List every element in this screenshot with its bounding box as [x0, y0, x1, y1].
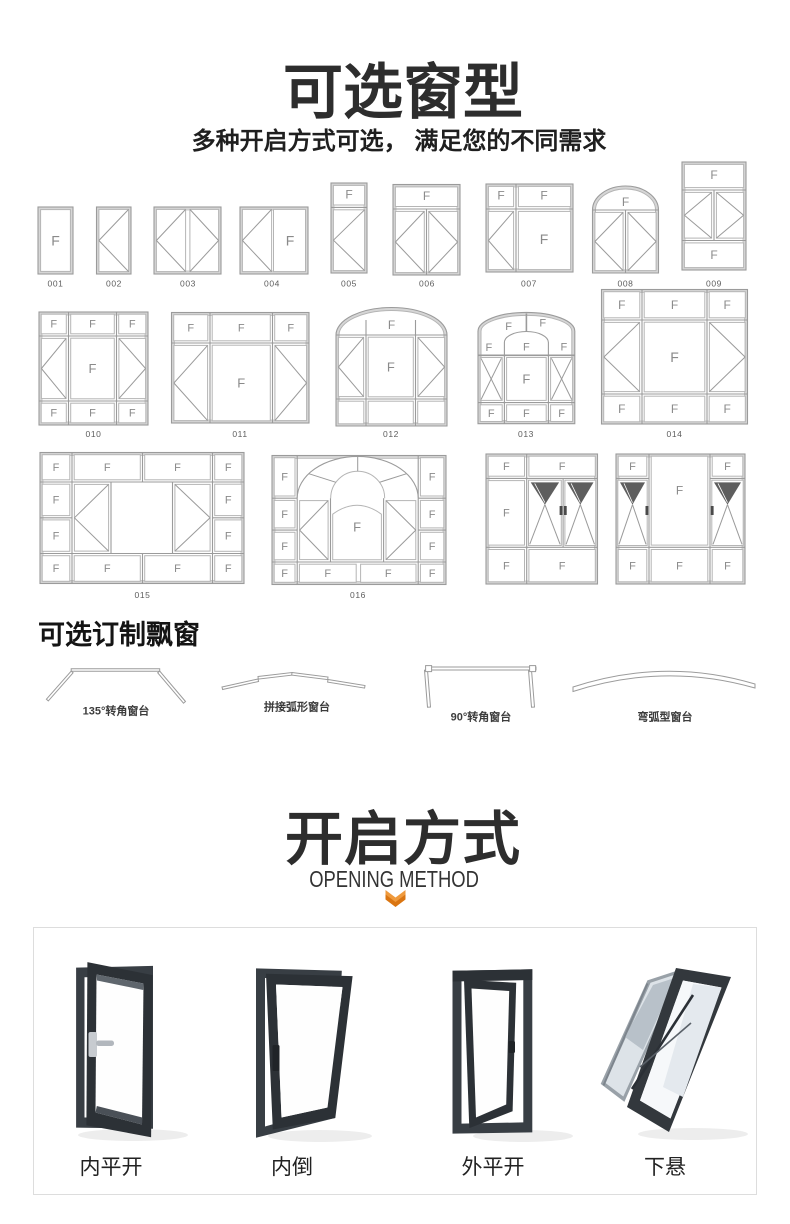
svg-text:F: F	[503, 560, 510, 572]
svg-text:009: 009	[706, 279, 722, 289]
svg-text:F: F	[286, 232, 295, 248]
svg-text:F: F	[281, 541, 288, 553]
svg-text:F: F	[676, 484, 683, 498]
svg-text:F: F	[104, 462, 111, 474]
svg-text:007: 007	[521, 279, 537, 289]
svg-text:F: F	[53, 530, 60, 542]
svg-text:F: F	[353, 519, 361, 534]
svg-text:135°转角窗台: 135°转角窗台	[83, 704, 150, 718]
svg-text:F: F	[561, 341, 568, 353]
svg-text:弯弧型窗台: 弯弧型窗台	[638, 710, 693, 724]
svg-text:013: 013	[518, 429, 534, 439]
svg-text:F: F	[523, 341, 530, 353]
svg-text:90°转角窗台: 90°转角窗台	[451, 710, 512, 724]
svg-text:F: F	[558, 408, 565, 420]
svg-text:F: F	[724, 298, 731, 312]
svg-text:F: F	[429, 541, 436, 553]
svg-text:F: F	[724, 461, 731, 473]
svg-text:F: F	[385, 568, 392, 580]
svg-text:F: F	[429, 568, 436, 580]
svg-text:F: F	[540, 189, 547, 203]
svg-text:F: F	[710, 168, 717, 182]
svg-text:F: F	[629, 461, 636, 473]
svg-text:F: F	[505, 321, 512, 333]
svg-text:002: 002	[106, 279, 122, 289]
svg-text:F: F	[281, 568, 288, 580]
svg-text:F: F	[89, 319, 96, 331]
svg-text:F: F	[174, 563, 181, 575]
svg-text:011: 011	[232, 429, 247, 439]
svg-text:F: F	[486, 342, 493, 354]
svg-text:F: F	[237, 375, 245, 390]
svg-text:F: F	[629, 560, 636, 572]
svg-text:F: F	[129, 319, 136, 331]
svg-text:005: 005	[341, 279, 357, 289]
svg-text:F: F	[89, 361, 97, 376]
svg-text:F: F	[622, 195, 629, 209]
svg-text:F: F	[540, 231, 549, 247]
svg-text:F: F	[225, 495, 232, 507]
svg-text:F: F	[387, 359, 395, 374]
svg-text:F: F	[429, 472, 436, 484]
svg-text:F: F	[281, 472, 288, 484]
svg-text:F: F	[53, 495, 60, 507]
svg-text:F: F	[710, 248, 717, 262]
svg-text:F: F	[388, 318, 395, 332]
svg-text:F: F	[497, 189, 504, 203]
svg-text:拼接弧形窗台: 拼接弧形窗台	[264, 700, 330, 714]
svg-text:F: F	[618, 298, 625, 312]
svg-text:F: F	[523, 408, 530, 420]
svg-text:F: F	[423, 189, 430, 203]
svg-text:016: 016	[350, 590, 366, 600]
svg-text:F: F	[51, 232, 60, 248]
svg-text:F: F	[671, 402, 678, 416]
svg-text:F: F	[559, 560, 566, 572]
svg-text:014: 014	[667, 429, 683, 439]
svg-text:015: 015	[135, 590, 151, 600]
svg-text:F: F	[281, 509, 288, 521]
svg-text:F: F	[559, 461, 566, 473]
svg-text:F: F	[53, 462, 60, 474]
svg-text:003: 003	[180, 279, 196, 289]
svg-text:006: 006	[419, 279, 435, 289]
svg-text:F: F	[53, 563, 60, 575]
svg-text:F: F	[89, 408, 96, 420]
svg-text:004: 004	[264, 279, 280, 289]
svg-text:F: F	[225, 563, 232, 575]
svg-text:F: F	[670, 349, 679, 365]
svg-text:F: F	[503, 508, 510, 520]
svg-text:F: F	[287, 323, 294, 335]
svg-text:F: F	[488, 408, 495, 420]
svg-text:F: F	[187, 323, 194, 335]
svg-text:F: F	[225, 462, 232, 474]
svg-text:F: F	[104, 563, 111, 575]
svg-text:F: F	[724, 560, 731, 572]
svg-text:F: F	[345, 188, 352, 202]
svg-text:F: F	[225, 530, 232, 542]
svg-text:F: F	[324, 568, 331, 580]
svg-text:F: F	[671, 298, 678, 312]
svg-text:008: 008	[618, 279, 634, 289]
svg-text:F: F	[522, 371, 530, 386]
svg-text:001: 001	[48, 279, 64, 289]
svg-text:010: 010	[86, 429, 102, 439]
svg-text:F: F	[50, 408, 57, 420]
svg-text:F: F	[539, 317, 546, 329]
svg-text:F: F	[50, 319, 57, 331]
svg-text:F: F	[238, 323, 245, 335]
svg-text:F: F	[129, 408, 136, 420]
svg-text:F: F	[174, 462, 181, 474]
svg-text:F: F	[429, 509, 436, 521]
svg-text:F: F	[503, 461, 510, 473]
svg-text:F: F	[618, 402, 625, 416]
svg-text:012: 012	[383, 429, 399, 439]
svg-text:F: F	[724, 402, 731, 416]
svg-text:F: F	[676, 560, 683, 572]
